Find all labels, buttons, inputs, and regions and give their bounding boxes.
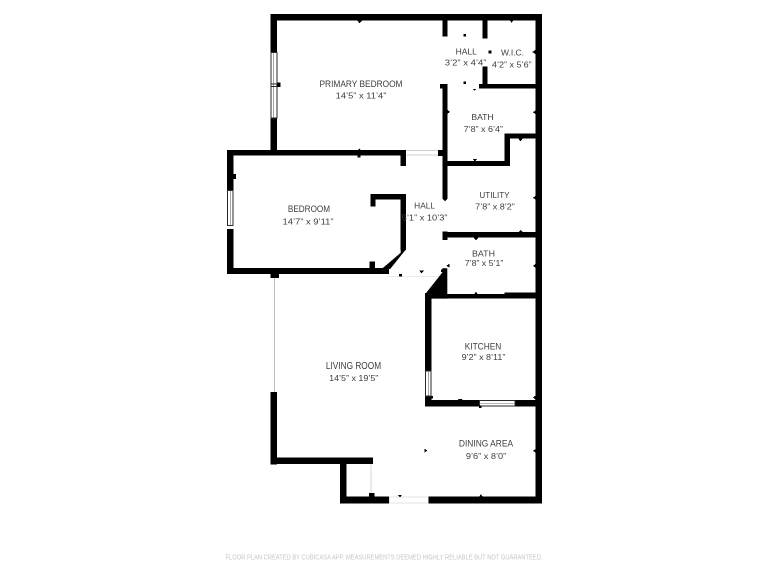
svg-text:BATH: BATH bbox=[472, 249, 495, 259]
svg-text:W.I.C.: W.I.C. bbox=[501, 48, 524, 57]
svg-text:4’2” x 5’6”: 4’2” x 5’6” bbox=[492, 60, 532, 70]
svg-text:BEDROOM: BEDROOM bbox=[288, 204, 330, 214]
svg-text:9’2” x 8’11”: 9’2” x 8’11” bbox=[462, 352, 506, 362]
svg-text:9’6” x 8’0”: 9’6” x 8’0” bbox=[466, 451, 506, 461]
svg-text:PRIMARY BEDROOM: PRIMARY BEDROOM bbox=[320, 79, 403, 89]
svg-text:14’5” x 11’4”: 14’5” x 11’4” bbox=[336, 91, 387, 101]
svg-text:KITCHEN: KITCHEN bbox=[465, 342, 502, 352]
svg-text:14’5” x 19’5”: 14’5” x 19’5” bbox=[329, 373, 378, 383]
svg-text:5’1” x 10’3”: 5’1” x 10’3” bbox=[402, 213, 448, 223]
svg-text:LIVING ROOM: LIVING ROOM bbox=[326, 361, 381, 372]
svg-text:7’8” x 5’1”: 7’8” x 5’1” bbox=[465, 258, 504, 268]
svg-text:BATH: BATH bbox=[471, 112, 493, 122]
svg-text:3’2” x 4’4”: 3’2” x 4’4” bbox=[445, 58, 487, 68]
svg-text:HALL: HALL bbox=[414, 202, 435, 211]
svg-text:HALL: HALL bbox=[456, 47, 478, 56]
svg-text:7’8” x 8’2”: 7’8” x 8’2” bbox=[475, 202, 515, 212]
svg-text:DINING AREA: DINING AREA bbox=[459, 439, 514, 449]
svg-text:14’7” x 9’11”: 14’7” x 9’11” bbox=[283, 216, 334, 226]
svg-text:7’8” x 6’4”: 7’8” x 6’4” bbox=[464, 124, 504, 134]
svg-text:FLOOR PLAN CREATED BY CUBICASA: FLOOR PLAN CREATED BY CUBICASA APP. MEAS… bbox=[226, 553, 543, 562]
svg-text:UTILITY: UTILITY bbox=[479, 190, 509, 200]
